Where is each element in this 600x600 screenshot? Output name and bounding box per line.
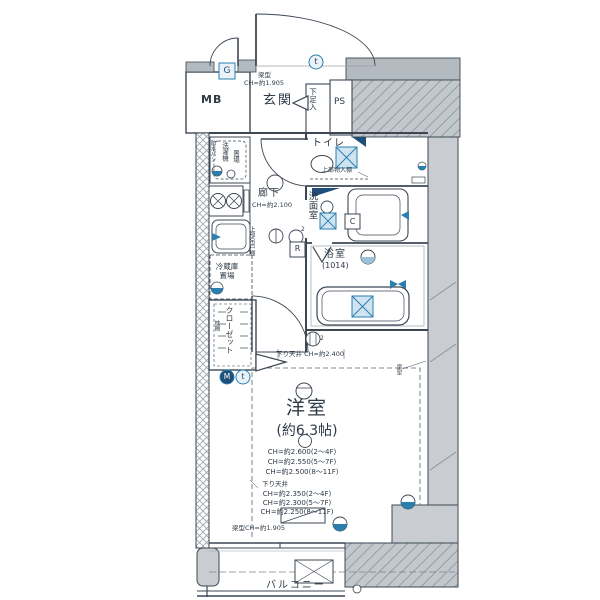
r-mark: R — [290, 245, 305, 253]
bottom-right-hatched-wall — [345, 543, 458, 587]
top-right-hatched-area — [352, 80, 460, 137]
washer-place-label-1: 洗濯機 — [221, 142, 228, 162]
room-label-bedroom: 洋室 — [262, 399, 352, 418]
outlet2-bath-mark: 2 — [320, 336, 324, 342]
room-label-mb: MB — [201, 94, 222, 105]
balcony-drain — [353, 585, 361, 593]
balcony-window — [209, 543, 345, 551]
t-mark-bottom: t — [236, 373, 250, 381]
left-insulated-wall — [196, 133, 209, 548]
toilet-shelf-label: 上部物入棚 — [322, 168, 352, 174]
vanity-basin — [312, 188, 409, 241]
room-label-toilet: トイレ — [312, 139, 345, 149]
room-label-balcony: バルコニー — [266, 581, 326, 591]
m-mark: M — [220, 373, 234, 381]
bathroom-vent — [306, 332, 320, 346]
right-wall — [428, 137, 458, 505]
corridor-ch-label: CH=約2.100 — [252, 202, 292, 209]
room-label-entrance: 玄関 — [263, 94, 293, 107]
side-beam-label: 梁型 — [395, 364, 401, 375]
pipe-space — [330, 80, 352, 135]
room-label-ps: PS — [334, 98, 345, 107]
stove — [209, 186, 249, 216]
lowered-ceiling-2400-label: 下り天井 CH=約2.400 — [276, 351, 344, 358]
bathroom-size-label: (1014) — [322, 262, 349, 270]
room-label-washroom: 洗面室 — [307, 191, 317, 220]
t-mark-top: t — [310, 58, 322, 66]
kitchen-sink — [212, 220, 250, 253]
ch-lower-label-1: CH=約2.350(2〜4F) — [247, 491, 347, 498]
balcony-column — [197, 548, 219, 586]
bathtub — [317, 287, 409, 325]
upper-cupboard-label: 上部吊戸棚 — [248, 226, 254, 256]
room-label-closet: クローゼット — [225, 306, 233, 354]
window-beam-label: 梁型CH=約1.905 — [232, 525, 285, 532]
bedroom-door — [252, 296, 308, 352]
washer-place-label-2: 置場 — [232, 150, 239, 163]
waterproof-pan-label: 防水パン — [209, 140, 215, 162]
ch-upper-label-2: CH=約2.550(5〜7F) — [252, 459, 352, 466]
entrance-beam-label-1: 梁型 — [258, 72, 271, 79]
top-right-wall — [346, 58, 460, 80]
outlet2-corridor-mark: 2 — [301, 227, 305, 233]
gas-mark: G — [219, 67, 235, 76]
pillow-shelf-label: 枕棚 — [213, 320, 219, 331]
lowered-ceiling-label: 下り天井 — [262, 481, 288, 488]
entrance-step-arrow — [293, 96, 308, 110]
entrance-beam-label-2: CH=約1.905 — [244, 80, 284, 87]
wall-jog — [392, 505, 458, 543]
ch-upper-label-3: CH=約2.500(8〜11F) — [252, 469, 352, 476]
washing-machine-space — [210, 137, 250, 183]
ch-upper-label-1: CH=約2.600(2〜4F) — [252, 449, 352, 456]
c-mark: C — [345, 218, 360, 226]
bedroom-size-label: (約6.3帖) — [258, 424, 356, 438]
floorplan: MB G t 梁型 CH=約1.905 玄関 下足入 PS トイレ 上部物入棚 … — [0, 0, 600, 600]
room-label-bathroom: 浴室 — [324, 250, 346, 260]
fridge-place-label: 冷蔵庫置場 — [213, 263, 241, 280]
ch-lower-label-2: CH=約2.300(5〜7F) — [247, 500, 347, 507]
room-label-shoe-cupboard: 下足入 — [309, 88, 317, 111]
room-label-corridor: 廊下 — [258, 189, 280, 199]
ch-lower-label-3: CH=約2.250(8〜11F) — [247, 509, 347, 516]
fixtures — [209, 137, 426, 325]
